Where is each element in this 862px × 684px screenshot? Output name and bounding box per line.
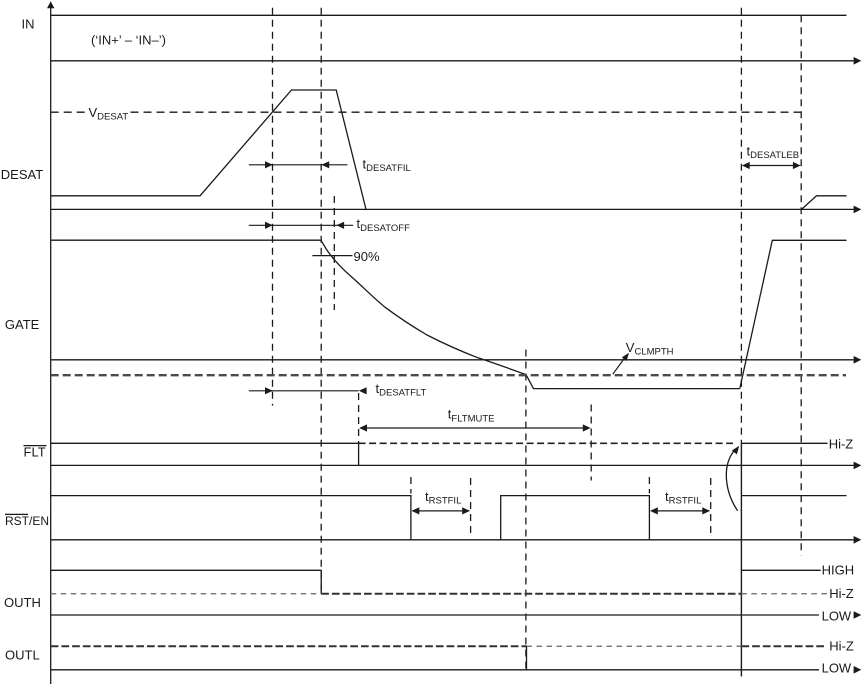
svg-text:RST/EN: RST/EN <box>5 514 49 528</box>
svg-text:OUTH: OUTH <box>4 595 41 610</box>
svg-text:OUTL: OUTL <box>5 648 40 663</box>
svg-text:(‘IN+’ – ‘IN–’): (‘IN+’ – ‘IN–’) <box>91 32 166 47</box>
svg-text:GATE: GATE <box>5 317 40 332</box>
svg-text:LOW: LOW <box>822 609 852 624</box>
svg-text:DESAT: DESAT <box>1 167 43 182</box>
svg-text:HIGH: HIGH <box>822 563 855 578</box>
svg-text:Hi-Z: Hi-Z <box>829 437 854 452</box>
svg-text:90%: 90% <box>354 249 380 264</box>
svg-text:Hi-Z: Hi-Z <box>829 638 854 653</box>
svg-text:Hi-Z: Hi-Z <box>829 586 854 601</box>
svg-text:FLT: FLT <box>24 445 46 460</box>
svg-text:LOW: LOW <box>822 661 852 676</box>
svg-text:IN: IN <box>22 17 35 32</box>
